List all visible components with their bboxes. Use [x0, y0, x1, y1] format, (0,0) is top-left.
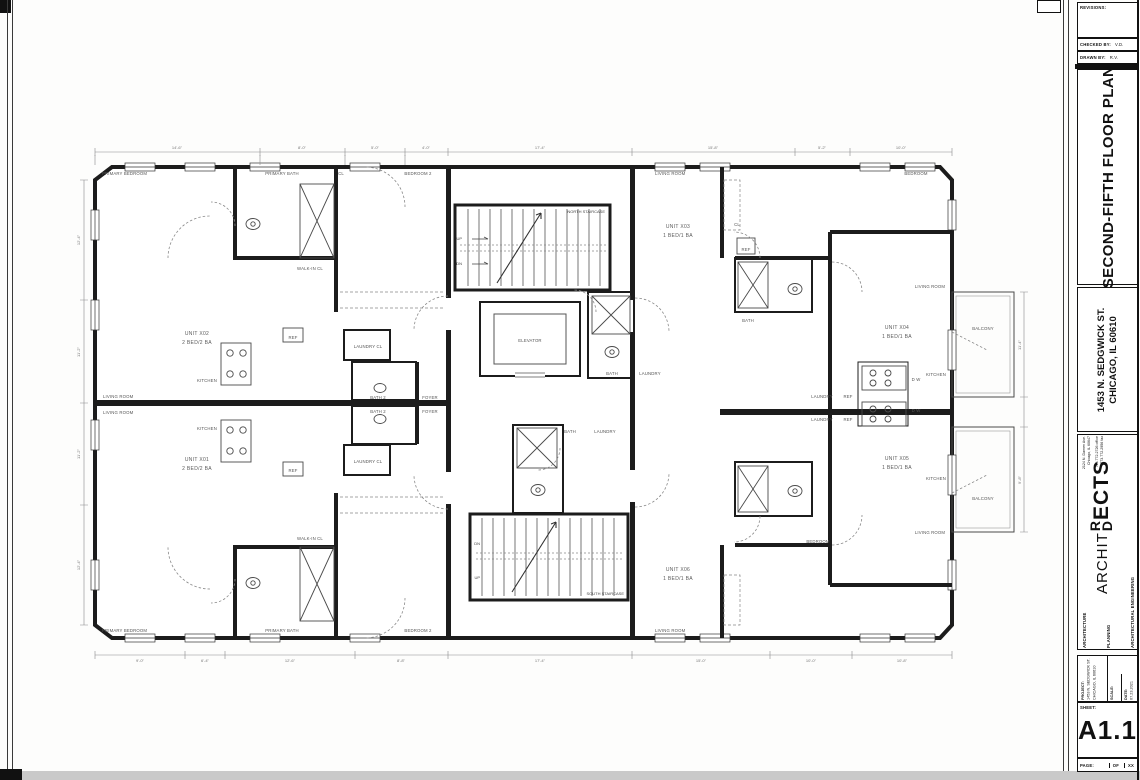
unit-x06-type: 1 BED/1 BA	[663, 576, 693, 582]
room-label: LIVING ROOM	[655, 171, 686, 176]
unit-x05-type: 1 BED/1 BA	[882, 465, 912, 471]
scale-label: SCALE:	[1110, 658, 1116, 700]
sheet-number: A1.1	[1078, 715, 1137, 746]
architect-firm-box: ARCHITECTURE PLANNING ARCHITECTURAL ENGI…	[1077, 434, 1138, 650]
room-label: KITCHEN	[197, 426, 217, 431]
dim-label: 9'-8"	[1017, 475, 1022, 484]
sheet-title: SECOND-FIFTH FLOOR PLAN	[1099, 66, 1116, 289]
room-label: LIVING ROOM	[915, 530, 946, 535]
date-block: DATE: 07.23.2021	[1124, 670, 1135, 700]
room-label: PRIMARY BEDROOM	[102, 628, 147, 633]
sheet-title-box: SECOND-FIFTH FLOOR PLAN	[1077, 69, 1138, 285]
room-label: BATH	[606, 371, 618, 376]
firm-address-2: Chicago, IL 60647	[1087, 436, 1092, 469]
room-label: D W	[912, 377, 922, 382]
north-staircase-label: NORTH STAIRCASE	[567, 209, 605, 214]
firm-monogram-d: D	[1102, 521, 1114, 531]
unit-x02-name: UNIT X02	[185, 331, 209, 337]
room-label: KITCHEN	[197, 378, 217, 383]
dim-label: 10'-0"	[896, 145, 907, 150]
room-label: BEDROOM 2	[404, 628, 432, 633]
room-label: BATH	[564, 429, 576, 434]
room-label: LAUNDRY	[811, 417, 833, 422]
firm-phone-fax: 773.772.2956 fax	[1100, 436, 1105, 469]
room-label: REF	[741, 247, 750, 252]
unit-x01-name: UNIT X01	[185, 457, 209, 463]
sheet-border-right-inner	[1068, 0, 1069, 771]
dn-label: DN	[456, 261, 462, 266]
firm-service-3: ARCHITECTURAL ENGINEERING	[1130, 577, 1135, 648]
firm-address-1: 2124 N. Damen Ave.	[1082, 436, 1087, 469]
drawn-by-label: DRAWN BY:	[1080, 55, 1106, 60]
dim-label: 9'-0"	[136, 658, 145, 663]
dim-label: 11'-2"	[76, 346, 81, 356]
unit-x04-type: 1 BED/1 BA	[882, 334, 912, 340]
unit-x06-name: UNIT X06	[666, 567, 690, 573]
room-label: BALCONY	[972, 326, 994, 331]
unit-x04-name: UNIT X04	[885, 325, 909, 331]
south-staircase-label: SOUTH STAIRCASE	[587, 591, 625, 596]
room-label: PRIMARY BATH	[265, 171, 299, 176]
firm-service-1: ARCHITECTURE	[1082, 613, 1087, 648]
room-label: LAUNDRY	[594, 429, 616, 434]
project-info-box: PROJECT: 1453 N. SEDGWICK ST. CHICAGO, I…	[1077, 655, 1138, 702]
revisions-box: REVISIONS:	[1077, 2, 1138, 38]
dim-label: 5'-0"	[371, 145, 380, 150]
project-line2: CHICAGO, IL 60610	[1092, 658, 1098, 700]
room-label: LIVING ROOM	[655, 628, 686, 633]
firm-name-part1: ARCHIT	[1093, 532, 1110, 594]
north-staircase: NORTH STAIRCASE UP DN	[455, 205, 610, 290]
room-label: CL	[338, 171, 344, 176]
room-label: BATH 2	[370, 395, 386, 400]
room-label: REF	[843, 394, 852, 399]
dim-label: 12'-4"	[76, 234, 81, 245]
sheet-number-box: SHEET: A1.1	[1077, 702, 1138, 758]
room-label: REF	[288, 335, 297, 340]
dim-label: 4'-0"	[422, 145, 431, 150]
firm-wordmark: ARCHIT R D ECTS	[1090, 460, 1114, 594]
south-staircase: SOUTH STAIRCASE DN UP	[470, 514, 628, 600]
room-label: BEDROOM	[806, 539, 830, 544]
firm-service-2: PLANNING	[1106, 625, 1111, 648]
room-label: D W	[912, 408, 922, 413]
checked-by-value: V.D.	[1115, 42, 1124, 47]
balcony-lower	[952, 427, 1014, 532]
dim-label: 17'-4"	[535, 145, 546, 150]
elevator: ELEVATOR	[480, 302, 580, 380]
balcony-upper	[952, 292, 1014, 397]
unit-x03-name: UNIT X03	[666, 224, 690, 230]
dim-label: 8'-8"	[397, 658, 406, 663]
room-label: BALCONY	[972, 496, 994, 501]
floor-plan-drawing: NORTH STAIRCASE UP DN ELEVATOR SOUTH STA…	[0, 0, 1063, 780]
unit-x02-type: 2 BED/2 BA	[182, 340, 212, 346]
page-label: PAGE:	[1080, 763, 1094, 768]
dim-label: 10'-8"	[897, 658, 908, 663]
up-label: UP	[474, 575, 480, 580]
room-label: LAUNDRY	[639, 371, 661, 376]
room-label: BEDROOM	[904, 171, 928, 176]
dim-label: 15'-0"	[696, 658, 707, 663]
room-label: KITCHEN	[926, 476, 946, 481]
room-label: BEDROOM 2	[404, 171, 432, 176]
room-label: CL	[734, 222, 740, 227]
drawn-by-value: R.V.	[1110, 55, 1119, 60]
room-label: WALK-IN CL	[297, 266, 323, 271]
dim-label: 12'-6"	[285, 658, 296, 663]
unit-x01-type: 2 BED/2 BA	[182, 466, 212, 472]
room-label: WALK-IN CL	[297, 536, 323, 541]
room-label: REF	[843, 417, 852, 422]
room-label: LIVING ROOM	[103, 410, 134, 415]
page-row: PAGE: OF XX	[1077, 758, 1138, 772]
dim-label: 8'-0"	[298, 145, 307, 150]
room-label: BATH	[742, 318, 754, 323]
room-label: KITCHEN	[926, 372, 946, 377]
checked-by-row: CHECKED BY: V.D.	[1077, 38, 1138, 51]
room-label: LAUNDRY CL	[354, 344, 383, 349]
drawing-sheet: NORTH STAIRCASE UP DN ELEVATOR SOUTH STA…	[0, 0, 1140, 780]
project-address-box: 1453 N. SEDGWICK ST. CHICAGO, IL 60610	[1077, 287, 1138, 432]
unit-x03-type: 1 BED/1 BA	[663, 233, 693, 239]
project-block: PROJECT: 1453 N. SEDGWICK ST. CHICAGO, I…	[1081, 658, 1098, 700]
page-total: XX	[1124, 763, 1134, 768]
revisions-label: REVISIONS:	[1080, 5, 1106, 10]
room-label: LAUNDRY	[811, 394, 833, 399]
sheet-border-right-outer	[1063, 0, 1064, 771]
page-of: OF	[1109, 763, 1119, 768]
room-label: PRIMARY BATH	[265, 628, 299, 633]
sheet-label: SHEET:	[1080, 705, 1096, 710]
checked-by-label: CHECKED BY:	[1080, 42, 1111, 47]
room-label: LAUNDRY CL	[354, 459, 383, 464]
dn-label: DN	[474, 541, 480, 546]
room-label: PRIMARY BEDROOM	[102, 171, 147, 176]
dim-label: 14'-6"	[172, 145, 183, 150]
dim-label: 5'-2"	[818, 145, 827, 150]
room-label: LIVING ROOM	[103, 394, 134, 399]
date-value: 07.23.2021	[1130, 670, 1136, 700]
dim-label: 12'-4"	[76, 559, 81, 570]
room-label: REF	[288, 468, 297, 473]
dim-label: 15'-8"	[708, 145, 719, 150]
dim-label: 10'-0"	[806, 658, 817, 663]
address-line1: 1453 N. SEDGWICK ST.	[1096, 307, 1108, 412]
elevator-label: ELEVATOR	[518, 338, 541, 343]
room-label: LIVING ROOM	[915, 284, 946, 289]
dim-label: 6'-4"	[201, 658, 210, 663]
room-label: FOYER	[422, 409, 438, 414]
unit-x05-name: UNIT X05	[885, 456, 909, 462]
dim-label: 11'-4"	[1017, 339, 1022, 349]
room-label: BATH 2	[370, 409, 386, 414]
dim-label: 11'-2"	[76, 448, 81, 458]
dim-label: 17'-4"	[535, 658, 546, 663]
drawn-by-row: DRAWN BY: R.V.	[1077, 51, 1138, 64]
room-label: FOYER	[422, 395, 438, 400]
address-line2: CHICAGO, IL 60610	[1108, 316, 1120, 403]
up-label: UP	[456, 236, 462, 241]
firm-phone-office: 773.772.2726 office	[1095, 436, 1100, 469]
